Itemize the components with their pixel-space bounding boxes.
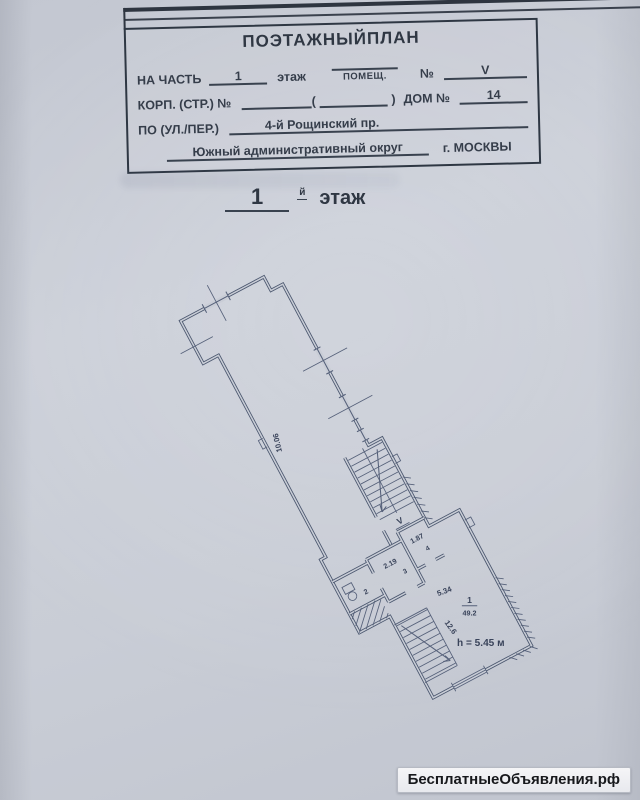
- room3-number: 3: [402, 568, 409, 576]
- header-row-street: ПО (УЛ./ПЕР.) 4-й Рощинский пр.: [138, 112, 528, 138]
- floor-title-number: 1: [225, 186, 289, 212]
- header-row-floor: НА ЧАСТЬ 1 этаж ПОМЕЩ. № V: [137, 54, 527, 88]
- number-sign-label: №: [420, 66, 434, 80]
- pomesch-label: ПОМЕЩ.: [343, 71, 387, 83]
- korp-blank-line: [241, 106, 312, 110]
- floor-title-suffix: й: [297, 187, 307, 200]
- site-watermark: БесплатныеОбъявления.рф: [397, 767, 631, 793]
- windows: [158, 241, 513, 731]
- korp-label: КОРП. (СТР.) №: [137, 96, 231, 112]
- floor-plan-svg: 10.06 2.19 3 1.87 4 2 5.34 12.6 V 1 49.2…: [153, 220, 563, 763]
- house-number-value: 14: [460, 87, 528, 105]
- header-row-okrug: Южный административный округ г. МОСКВЫ: [139, 137, 529, 163]
- floor-title-word: этаж: [319, 186, 365, 210]
- floor-title: 1 й этаж: [225, 186, 365, 212]
- paren-open: (: [311, 94, 316, 108]
- korp-blank-line-2: [320, 105, 388, 109]
- room4-dim-label: 1.87: [409, 531, 426, 546]
- room4-number: 4: [425, 545, 432, 553]
- paren-close: ): [391, 92, 396, 106]
- okrug-value: Южный административный округ: [167, 140, 429, 162]
- boundary-hatch-marks: [392, 437, 540, 667]
- premises-number-value: V: [444, 62, 527, 80]
- pomesch-fraction: ПОМЕЩ.: [331, 57, 398, 83]
- pomesch-line: [331, 57, 397, 71]
- room3-dim-label: 2.19: [382, 556, 399, 571]
- room1-area: 49.2: [463, 608, 477, 617]
- floor-number-value: 1: [209, 68, 267, 85]
- ceiling-height-group: h = 5.45 м: [457, 638, 505, 649]
- na-chast-label: НА ЧАСТЬ: [137, 72, 202, 88]
- street-value: 4-й Рощинский пр.: [229, 112, 529, 135]
- ceiling-height-label: h = 5.45 м: [457, 638, 505, 649]
- header-box: ПОЭТАЖНЫЙПЛАН НА ЧАСТЬ 1 этаж ПОМЕЩ. № V…: [124, 18, 541, 174]
- stair-dim-label: 12.6: [443, 619, 459, 636]
- room1-number: 1: [467, 595, 472, 605]
- dom-label: ДОМ №: [403, 91, 450, 106]
- room1-fraction: 1 49.2: [462, 595, 477, 617]
- header-form: ПОЭТАЖНЫЙПЛАН НА ЧАСТЬ 1 этаж ПОМЕЩ. № V…: [115, 0, 640, 245]
- toilet-icon: [342, 583, 359, 603]
- document-title: ПОЭТАЖНЫЙПЛАН: [136, 25, 526, 55]
- street-label: ПО (УЛ./ПЕР.): [138, 122, 219, 138]
- room2-number: 2: [362, 587, 370, 597]
- corridor-length-label: 10.06: [271, 432, 284, 453]
- header-row-building: КОРП. (СТР.) № ( ) ДОМ № 14: [137, 87, 527, 113]
- main-dim-label: 5.34: [436, 584, 454, 598]
- entry-marker: V: [395, 515, 405, 527]
- etazh-label: этаж: [277, 70, 306, 85]
- city-label: г. МОСКВЫ: [443, 139, 512, 155]
- floor-plan-drawing: 10.06 2.19 3 1.87 4 2 5.34 12.6 V 1 49.2…: [153, 220, 563, 763]
